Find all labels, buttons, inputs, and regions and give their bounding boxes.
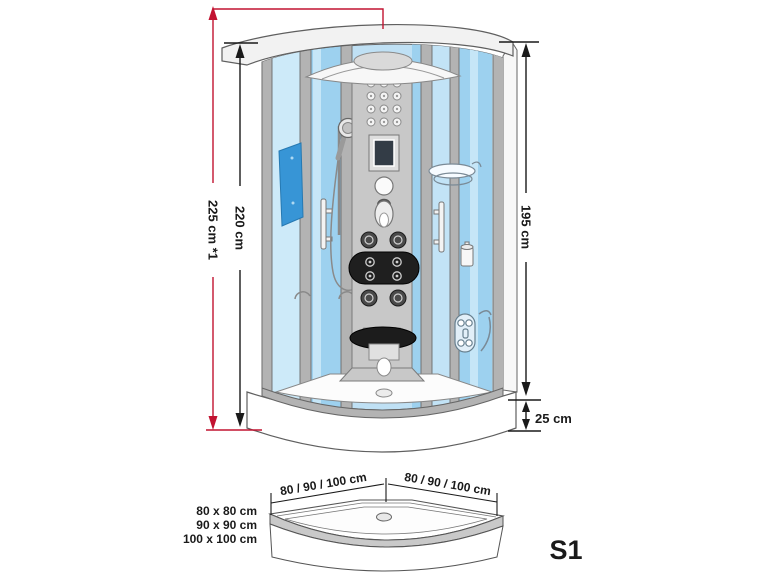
center-column <box>340 62 424 382</box>
control-screen <box>369 135 399 171</box>
diagram-svg: 225 cm *1 220 cm 195 cm 25 cm <box>0 0 770 578</box>
back-jet-panel <box>349 252 419 284</box>
model-label: S1 <box>549 535 582 565</box>
dome-light <box>354 52 412 70</box>
tray-size-option: 90 x 90 cm <box>196 518 257 532</box>
dim-220-label: 220 cm <box>232 206 247 250</box>
shower-cabin-dimension-diagram: 225 cm *1 220 cm 195 cm 25 cm <box>0 0 770 578</box>
side-jet-panel <box>455 314 475 352</box>
cabin-illustration <box>222 25 517 452</box>
tray-size-option: 100 x 100 cm <box>183 532 257 546</box>
dim-25-label: 25 cm <box>535 411 572 426</box>
dim-225-label: 225 cm *1 <box>205 200 220 260</box>
mirror <box>279 143 303 226</box>
dim-195-label: 195 cm <box>518 205 533 249</box>
drain <box>376 389 392 397</box>
tray-size-list: 80 x 80 cm 90 x 90 cm 100 x 100 cm <box>183 504 257 546</box>
tray-drain <box>377 513 392 521</box>
thermostat-knob <box>375 177 393 195</box>
tray-diagram: 80 / 90 / 100 cm 80 / 90 / 100 cm 80 x 8… <box>183 470 503 571</box>
right-outer-wall <box>503 42 517 392</box>
tray-size-option: 80 x 80 cm <box>196 504 257 518</box>
diverter-valve <box>375 200 393 227</box>
soap-dispenser <box>461 242 473 266</box>
